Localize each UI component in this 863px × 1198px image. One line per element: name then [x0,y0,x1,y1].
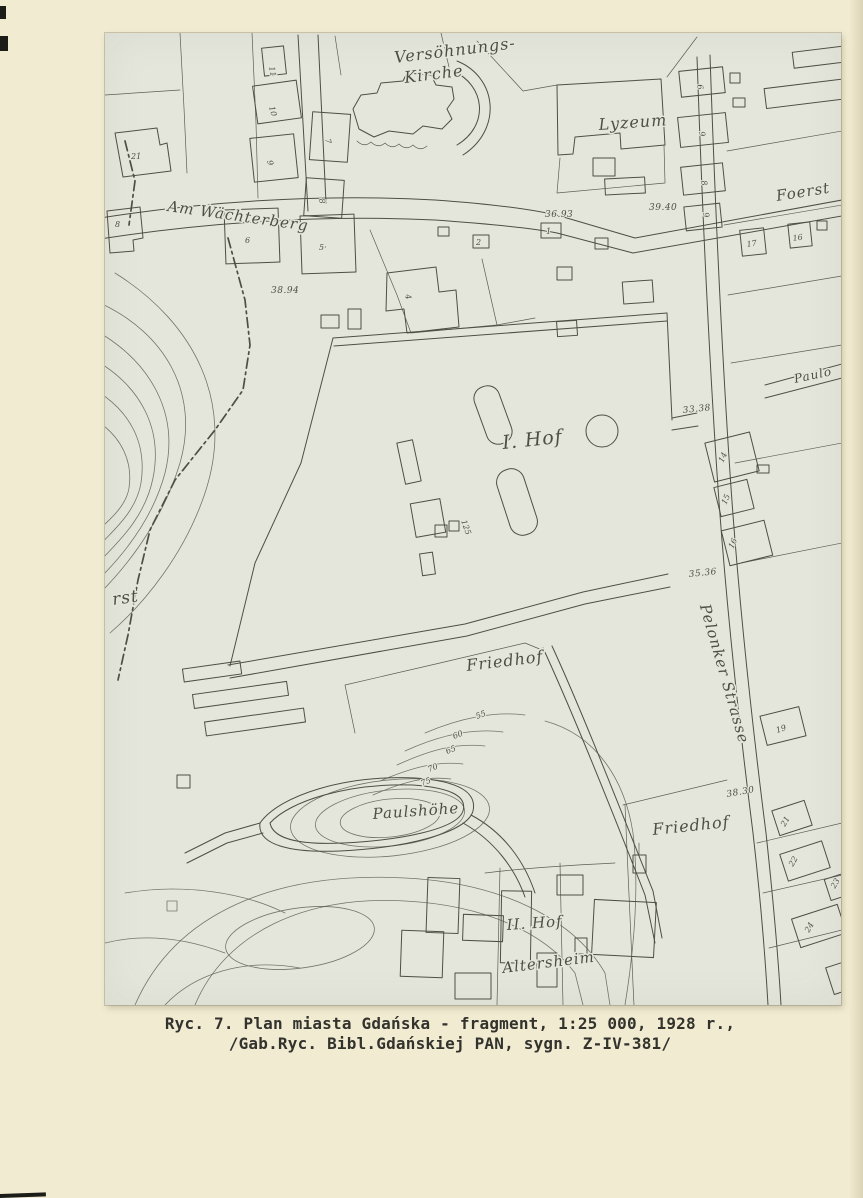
building-outline [593,158,615,176]
street-mid-road [228,574,670,678]
shed-outline [321,315,339,328]
churchyard-scallops [357,141,427,149]
label-friedhof-1: Friedhof [464,646,546,675]
house-number: 21 [778,815,791,829]
map-line [105,393,142,545]
map-line [397,745,485,765]
scan-artifact [0,6,6,19]
house-7 [309,112,350,163]
house-outline [826,956,841,995]
hof-compound [230,309,672,666]
label-altersheim: Altersheim [499,948,595,977]
house-4 [386,267,459,333]
map-line [125,889,285,913]
caption-line-1: Ryc. 7. Plan miasta Gdańska - fragment, … [110,1014,790,1034]
elevation-value: 39.40 [649,203,677,213]
house-21b [772,800,812,835]
label-foerst: Foerst [774,179,832,205]
house-number: 8 [115,220,120,229]
building-outline [410,499,445,538]
house-outline [679,67,725,97]
elevation-value: 33.38 [682,403,711,416]
house-number: 5· [319,243,327,252]
compound-fence [667,313,672,420]
barrack-row [205,708,306,736]
label-ii-hof: II. Hof [505,912,565,934]
map-line [118,238,250,680]
map-line [485,863,615,1005]
building-outline [400,930,444,977]
house-number: 14 [717,451,729,464]
house-outline [678,113,729,148]
house-24 [792,904,841,947]
house-number: 10 [267,105,278,117]
contour-label: 65 [444,744,457,756]
building-outline [455,973,491,999]
scanned-page: Versöhnungs- Kirche Lyzeum Am Wächterber… [0,0,863,1198]
hof2-altersheim-buildings [400,875,656,999]
building-outline [449,521,459,531]
elevation-values: 36.93 38.94 39.40 33.38 35.36 38.30 [271,203,755,800]
house-number: 23 [828,877,841,891]
building-outline [592,899,657,957]
building-outline [605,177,646,195]
lyzeum-buildings [557,79,665,195]
house-15 [714,479,754,516]
building-outline [426,877,460,933]
street-connector [557,216,635,253]
loop-spur [185,823,263,863]
street-pelonker-strasse [710,55,781,1005]
building-outline [733,98,745,107]
building-outline [177,775,190,788]
compound-west-edge [230,338,333,666]
barracks-building [493,465,541,538]
house-number: 17 [746,239,758,249]
label-i-hof: I. Hof [500,426,566,455]
house-number: 24 [802,921,815,935]
contour-label: 70 [426,762,439,774]
building-outline [817,221,827,230]
shed-outline [348,309,361,329]
house-number: 9 [265,159,275,166]
house-number: 11 [267,66,278,78]
map-line [335,36,341,75]
house-number: 9 [701,212,711,219]
house-number: 6 [245,236,250,245]
map-photo: Versöhnungs- Kirche Lyzeum Am Wächterber… [105,33,841,1005]
elevation-value: 36.93 [545,210,573,220]
figure-caption: Ryc. 7. Plan miasta Gdańska - fragment, … [110,1014,790,1054]
house-number: 16 [792,233,803,243]
contour-label: 60 [451,729,464,741]
label-friedhof-2: Friedhof [650,812,732,839]
map-line [425,714,525,733]
contour-label: 55 [474,709,487,721]
map-line [105,938,225,953]
map-line [105,90,180,95]
house-14 [705,432,759,482]
barrack-row [192,681,288,708]
map-line [411,259,535,333]
label-paulshoehe: Paulshöhe [371,799,460,823]
house-number: 15 [720,493,732,506]
house-number: 6 [695,84,705,91]
map-line [110,273,215,633]
map-line [180,33,187,173]
house-number: 8 [317,198,327,205]
building-number: 125 [459,519,473,536]
building-outline [167,901,177,911]
house-number: 8 [699,180,709,187]
building-outline [730,73,740,83]
house-number: 19 [775,723,787,735]
elevation-value: 38.30 [726,785,756,800]
map-line [135,877,610,1005]
map-line [105,333,169,578]
map-line [105,423,130,529]
cemetery-friedhof [177,643,646,873]
house-10 [253,80,302,124]
label-lyzeum: Lyzeum [597,110,668,134]
building-outline [557,267,572,280]
house-number: 21 [130,152,141,161]
fields-southwest [105,889,378,1005]
label-forst-cut: rst [111,586,140,610]
streets [105,35,841,1005]
house-number: 16 [727,537,739,550]
caption-line-2: /Gab.Ryc. Bibl.Gdańskiej PAN, sygn. Z-IV… [110,1034,790,1054]
contour-labels: 55 60 65 70 75 [419,709,487,788]
building-outline [397,440,421,484]
elevation-value: 38.94 [271,286,299,296]
house-number: 4 [403,292,413,300]
label-pelonker-strasse: Pelonker Strasse [696,601,753,746]
long-building [792,46,841,69]
forest-contours [105,273,215,633]
label-paulo: Paulo [792,364,834,386]
building-outline [420,552,436,576]
street-pelonker-strasse [697,57,768,1005]
elevation-value: 35.36 [688,567,717,580]
city-plan-map: Versöhnungs- Kirche Lyzeum Am Wächterber… [105,33,841,1005]
compound-fence [333,313,667,346]
parcel-lines [105,33,841,1005]
round-structure [586,415,618,447]
long-building [764,77,841,108]
house-number: 9 [697,131,707,138]
scan-artifact [0,36,8,51]
map-line [165,965,300,1005]
house-21 [115,128,171,177]
house-number: 1 [546,227,551,236]
house-outline [681,163,726,195]
building-outline [622,280,653,304]
building-outline [463,914,504,941]
building-outline [438,227,449,236]
scan-artifact [0,1192,46,1198]
contour-label: 75 [419,776,432,788]
loop-spur [463,815,535,897]
house-number: 7 [323,138,333,145]
house-number: 2 [475,238,481,247]
house-number: 22 [786,855,799,869]
